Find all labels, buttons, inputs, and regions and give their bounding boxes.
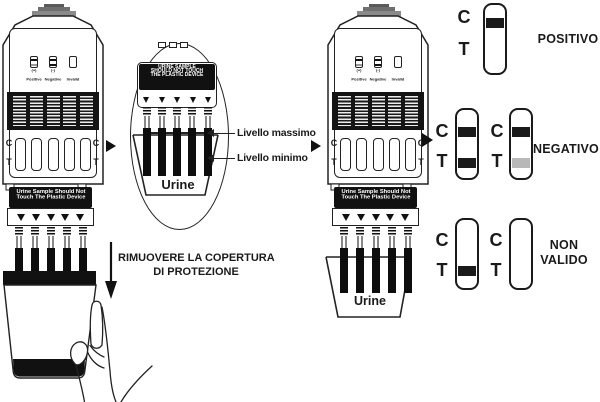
invalid-icon	[394, 56, 402, 68]
left-arrow-icon	[207, 129, 214, 137]
labeled-strip	[355, 96, 368, 126]
negative-symbol: (-)	[369, 68, 388, 73]
control-line-band	[512, 127, 530, 137]
result-strip-positive	[483, 3, 507, 75]
labeled-strip	[47, 96, 60, 126]
min-level-pointer	[214, 158, 235, 160]
down-arrow-icon	[372, 214, 380, 221]
finger-crease	[88, 352, 105, 368]
labeled-strip	[63, 96, 76, 126]
magnified-test-strips	[143, 107, 212, 176]
labeled-strip	[405, 96, 418, 126]
control-line-band	[458, 127, 476, 137]
test-line-label: T	[434, 152, 450, 170]
test-line-band	[458, 266, 476, 276]
positive-symbol: (+)	[349, 68, 368, 73]
arrow-row	[7, 208, 94, 226]
test-line-band	[458, 158, 476, 168]
labeled-strip	[13, 96, 26, 126]
invalid-label: Invalid	[63, 77, 82, 82]
result-strip-invalid-blank	[509, 218, 533, 290]
result-strip-negative-faint	[509, 108, 533, 180]
arrow-row	[143, 94, 211, 106]
test-strip	[188, 107, 196, 176]
result-window	[31, 138, 42, 171]
legend-invalid: Invalid	[388, 56, 407, 86]
down-arrow-icon	[205, 97, 211, 103]
result-window	[373, 138, 384, 171]
down-arrow-icon	[17, 214, 25, 221]
positive-icon	[355, 56, 363, 68]
test-line-label: T	[417, 158, 425, 167]
right-arrow-icon	[311, 140, 321, 152]
down-arrow-icon	[32, 214, 40, 221]
labeled-strip	[30, 96, 43, 126]
cover-top-band	[3, 271, 96, 285]
control-line-label: C	[92, 139, 100, 148]
left-arrow-icon	[207, 154, 214, 162]
result-windows	[15, 138, 91, 171]
result-strip-invalid-tonly	[455, 218, 479, 290]
palm-edge	[102, 307, 116, 402]
remove-cover-text-line1: RIMUOVERE LA COPERTURA	[118, 252, 274, 264]
warning-line-2: Touch The Plastic Device	[334, 195, 417, 201]
positive-symbol: (+)	[24, 68, 43, 73]
down-arrow-icon	[357, 214, 365, 221]
test-line-label: T	[488, 261, 504, 279]
test-line-label: T	[92, 158, 100, 167]
down-arrow-icon	[190, 97, 196, 103]
right-arrow-icon	[422, 133, 433, 147]
result-window	[80, 138, 91, 171]
labeled-strip	[388, 96, 401, 126]
warning-line-3: THE PLASTIC DEVICE	[139, 73, 215, 77]
result-legend-icons: (+) Positive (-) Negative Invalid	[24, 56, 82, 86]
index-finger	[90, 301, 102, 348]
warning-label: Urine Sample Should Not Touch The Plasti…	[334, 187, 417, 208]
test-strips	[340, 227, 412, 293]
test-strip	[143, 107, 151, 176]
magnified-warning-label: URINE SAMPLE SHOULD NOT TOUCH THE PLASTI…	[139, 64, 215, 90]
min-level-label: Livello minimo	[237, 152, 308, 164]
remove-cover-text-line2: DI PROTEZIONE	[118, 266, 274, 278]
invalid-label-line2: VALIDO	[538, 253, 590, 268]
down-arrow-icon	[61, 214, 69, 221]
control-line-label: C	[488, 231, 504, 249]
down-arrow-icon	[159, 97, 165, 103]
legend-invalid: Invalid	[63, 56, 82, 86]
device-tab	[169, 42, 177, 48]
control-line-label: C	[434, 122, 450, 140]
test-strip	[372, 227, 380, 293]
down-arrow-icon	[386, 214, 394, 221]
down-arrow-icon	[174, 97, 180, 103]
result-window	[356, 138, 367, 171]
max-level-label: Livello massimo	[237, 127, 316, 139]
result-window	[340, 138, 351, 171]
warning-line-2: Touch The Plastic Device	[9, 195, 92, 201]
down-arrow-large	[103, 241, 119, 301]
test-line-label: T	[489, 152, 505, 170]
negative-result-label: NEGATIVO	[532, 142, 600, 157]
device-tab	[180, 42, 188, 48]
protective-cover-and-hand	[0, 263, 160, 402]
invalid-label: Invalid	[388, 77, 407, 82]
negative-label: Negative	[44, 77, 63, 82]
result-windows	[340, 138, 416, 171]
result-window	[48, 138, 59, 171]
down-arrow-icon	[143, 97, 149, 103]
labeled-strip	[80, 96, 93, 126]
legend-positive: (+) Positive	[349, 56, 368, 86]
strip-label-band	[332, 92, 424, 130]
down-arrow-icon	[342, 214, 350, 221]
negative-label: Negative	[369, 77, 388, 82]
result-window	[389, 138, 400, 171]
negative-icon	[374, 56, 382, 68]
urine-label: Urine	[160, 177, 196, 192]
test-line-label: T	[456, 40, 472, 58]
down-arrow-icon	[47, 214, 55, 221]
invalid-icon	[69, 56, 77, 68]
right-arrow-icon	[106, 140, 116, 152]
test-strip	[340, 227, 348, 293]
labeled-strip	[372, 96, 385, 126]
legend-negative: (-) Negative	[369, 56, 388, 86]
control-line-label: C	[330, 139, 338, 148]
test-line-label: T	[5, 158, 13, 167]
down-arrow-icon	[401, 214, 409, 221]
control-line-label: C	[489, 122, 505, 140]
invalid-result-label: NON VALIDO	[538, 238, 590, 268]
device-tab	[158, 42, 166, 48]
result-strip-negative-strong	[455, 108, 479, 180]
down-arrow-icon	[76, 214, 84, 221]
control-line-label: C	[5, 139, 13, 148]
wrist-edge	[121, 366, 152, 402]
result-window	[405, 138, 416, 171]
positive-icon	[30, 56, 38, 68]
result-window	[15, 138, 26, 171]
legend-positive: (+) Positive	[24, 56, 43, 86]
negative-icon	[49, 56, 57, 68]
faint-test-line-band	[512, 158, 530, 168]
test-strip	[158, 107, 166, 176]
negative-symbol: (-)	[44, 68, 63, 73]
legend-negative: (-) Negative	[44, 56, 63, 86]
positive-label: Positive	[349, 77, 368, 82]
test-strip	[356, 227, 364, 293]
control-line-band	[486, 18, 504, 28]
test-line-label: T	[434, 261, 450, 279]
test-strip	[388, 227, 396, 293]
arrow-row	[332, 208, 419, 226]
test-strip	[173, 107, 181, 176]
instruction-sheet: (+) Positive (-) Negative Invalid C T C …	[0, 0, 600, 402]
test-line-label: T	[330, 158, 338, 167]
labeled-strip	[338, 96, 351, 126]
test-strip	[404, 227, 412, 293]
positive-label: Positive	[24, 77, 43, 82]
invalid-label-line1: NON	[538, 238, 590, 253]
result-legend-icons: (+) Positive (-) Negative Invalid	[349, 56, 407, 86]
result-window	[64, 138, 75, 171]
test-strip	[204, 107, 212, 176]
control-line-label: C	[456, 8, 472, 26]
urine-label: Urine	[352, 294, 388, 308]
positive-result-label: POSITIVO	[536, 32, 600, 47]
strip-label-band	[7, 92, 99, 130]
control-line-label: C	[434, 231, 450, 249]
warning-label: Urine Sample Should Not Touch The Plasti…	[9, 187, 92, 208]
max-level-pointer	[214, 133, 235, 135]
